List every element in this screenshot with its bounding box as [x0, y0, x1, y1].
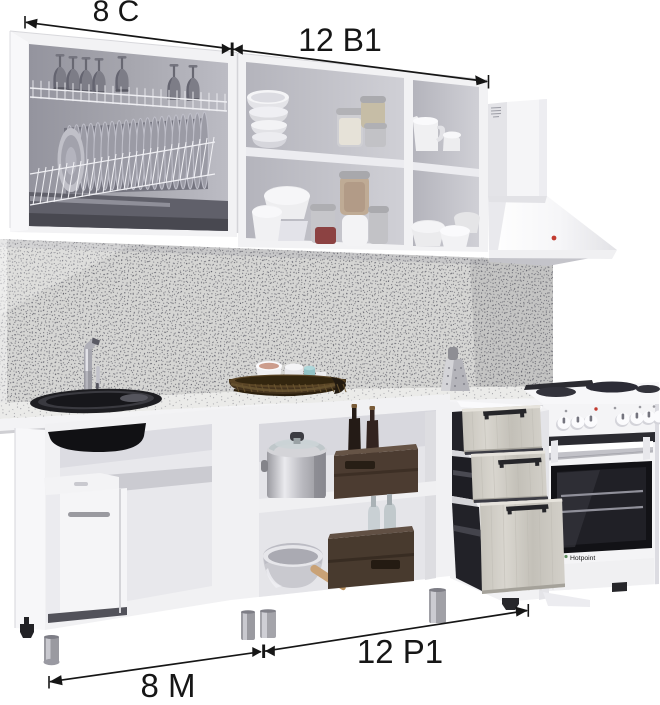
svg-text:Hotpoint: Hotpoint: [570, 555, 595, 562]
svg-text:8 С: 8 С: [93, 0, 140, 28]
svg-text:8 М: 8 М: [140, 667, 195, 700]
svg-text:12 Р1: 12 Р1: [357, 633, 443, 670]
svg-text:12 В1: 12 В1: [298, 22, 382, 58]
